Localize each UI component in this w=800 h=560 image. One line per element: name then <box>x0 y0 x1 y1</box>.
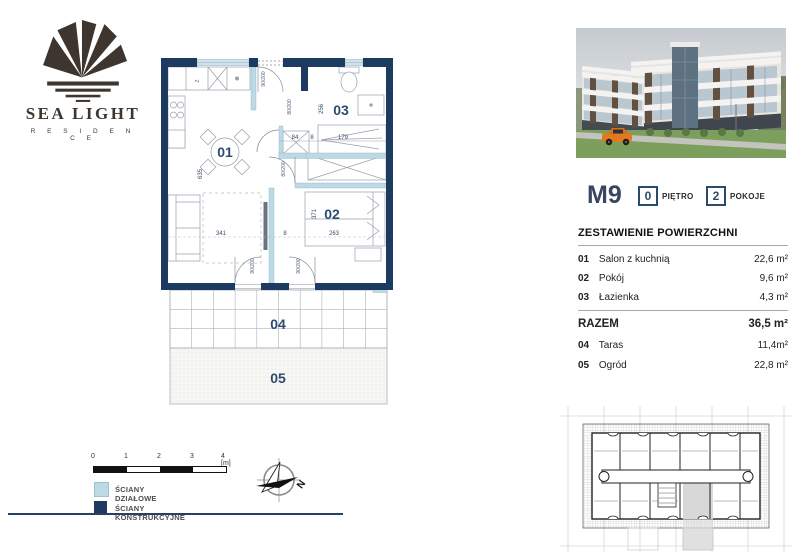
room-label-03: 03 <box>333 102 349 118</box>
logo-title: SEA LIGHT <box>24 104 142 124</box>
highlighted-unit <box>683 483 713 519</box>
furniture-layer <box>168 67 386 263</box>
door-label-entrance: 90/200 <box>261 71 267 87</box>
unit-code: M9 <box>587 181 622 210</box>
compass-north-label: N <box>295 479 308 491</box>
row-number: 02 <box>578 273 589 284</box>
stair-core <box>658 483 676 507</box>
floor-plan: 341 8 263 635 371 84 8 179 256 90/200 80… <box>155 52 400 407</box>
door-label-terrace1: 90/200 <box>250 258 256 274</box>
table-row: 02 Pokój 9,6 m² <box>578 273 788 286</box>
room-label-05: 05 <box>270 370 286 386</box>
highlighted-unit-garden <box>683 528 713 550</box>
legend-item-label: ŚCIANY DZIAŁOWE <box>115 485 157 503</box>
dim-179: 179 <box>338 135 349 141</box>
row-name: Łazienka <box>599 292 639 303</box>
row-value: 9,6 m² <box>760 273 788 284</box>
dim-371: 371 <box>312 208 318 219</box>
building-photo <box>576 28 786 158</box>
row-number: 05 <box>578 360 589 371</box>
row-name: Taras <box>599 340 623 351</box>
logo-tagline: R E S I D E N C E <box>24 128 142 142</box>
dim-635: 635 <box>198 168 204 179</box>
scale-tick-0: 0 <box>91 453 95 460</box>
scale-tick-2: 2 <box>157 453 161 460</box>
scale-tick-1: 1 <box>124 453 128 460</box>
row-name: Salon z kuchnią <box>599 254 670 265</box>
table-row: 03 Łazienka 4,3 m² <box>578 292 788 305</box>
scale-tick-4: 4 [m] <box>221 453 231 467</box>
area-table-title: ZESTAWIENIE POWIERZCHNI <box>578 227 738 239</box>
scale-bar-track <box>93 466 227 473</box>
dim-256: 256 <box>319 103 325 114</box>
rooms-label: POKOJE <box>730 192 765 201</box>
dim-8b: 8 <box>310 135 314 141</box>
dim-341: 341 <box>216 231 227 237</box>
total-value: 36,5 m² <box>748 318 788 330</box>
site-plan <box>556 404 796 556</box>
room-label-04: 04 <box>270 316 286 332</box>
dim-8: 8 <box>283 231 287 237</box>
table-rule-top <box>578 245 788 246</box>
dim-84: 84 <box>292 135 299 141</box>
row-value: 22,8 m² <box>754 360 788 371</box>
kitchen-appliance-label: Z <box>195 79 201 82</box>
room-label-02: 02 <box>324 206 340 222</box>
rooms-number-box: 2 <box>706 186 726 206</box>
partition-wall-swatch <box>94 482 109 497</box>
door-label-bedroom: 80/200 <box>281 161 287 177</box>
table-row: 04 Taras 11,4m² <box>578 340 788 353</box>
row-name: Pokój <box>599 273 624 284</box>
compass: N <box>250 452 312 512</box>
row-number: 04 <box>578 340 589 351</box>
logo: SEA LIGHT R E S I D E N C E <box>24 20 142 142</box>
scale-tick-3: 3 <box>190 453 194 460</box>
table-row: 01 Salon z kuchnią 22,6 m² <box>578 254 788 267</box>
total-label: RAZEM <box>578 318 619 330</box>
row-value: 11,4m² <box>758 340 788 351</box>
doors <box>235 61 315 289</box>
floor-label: PIĘTRO <box>662 192 694 201</box>
row-number: 03 <box>578 292 589 303</box>
row-number: 01 <box>578 254 589 265</box>
plan-sheet: SEA LIGHT R E S I D E N C E <box>0 0 800 560</box>
door-label-terrace2: 90/200 <box>296 258 302 274</box>
table-row: 05 Ogród 22,8 m² <box>578 360 788 373</box>
row-value: 22,6 m² <box>754 254 788 265</box>
dim-263: 263 <box>329 231 340 237</box>
room-label-01: 01 <box>217 144 233 160</box>
table-total-row: RAZEM 36,5 m² <box>578 318 788 331</box>
floor-number-box: 0 <box>638 186 658 206</box>
footer-divider <box>8 513 343 515</box>
door-label-bath: 80/200 <box>287 99 293 115</box>
row-name: Ogród <box>599 360 627 371</box>
table-rule-total <box>578 310 788 311</box>
sea-light-logo-icon <box>36 20 130 104</box>
row-value: 4,3 m² <box>760 292 788 303</box>
